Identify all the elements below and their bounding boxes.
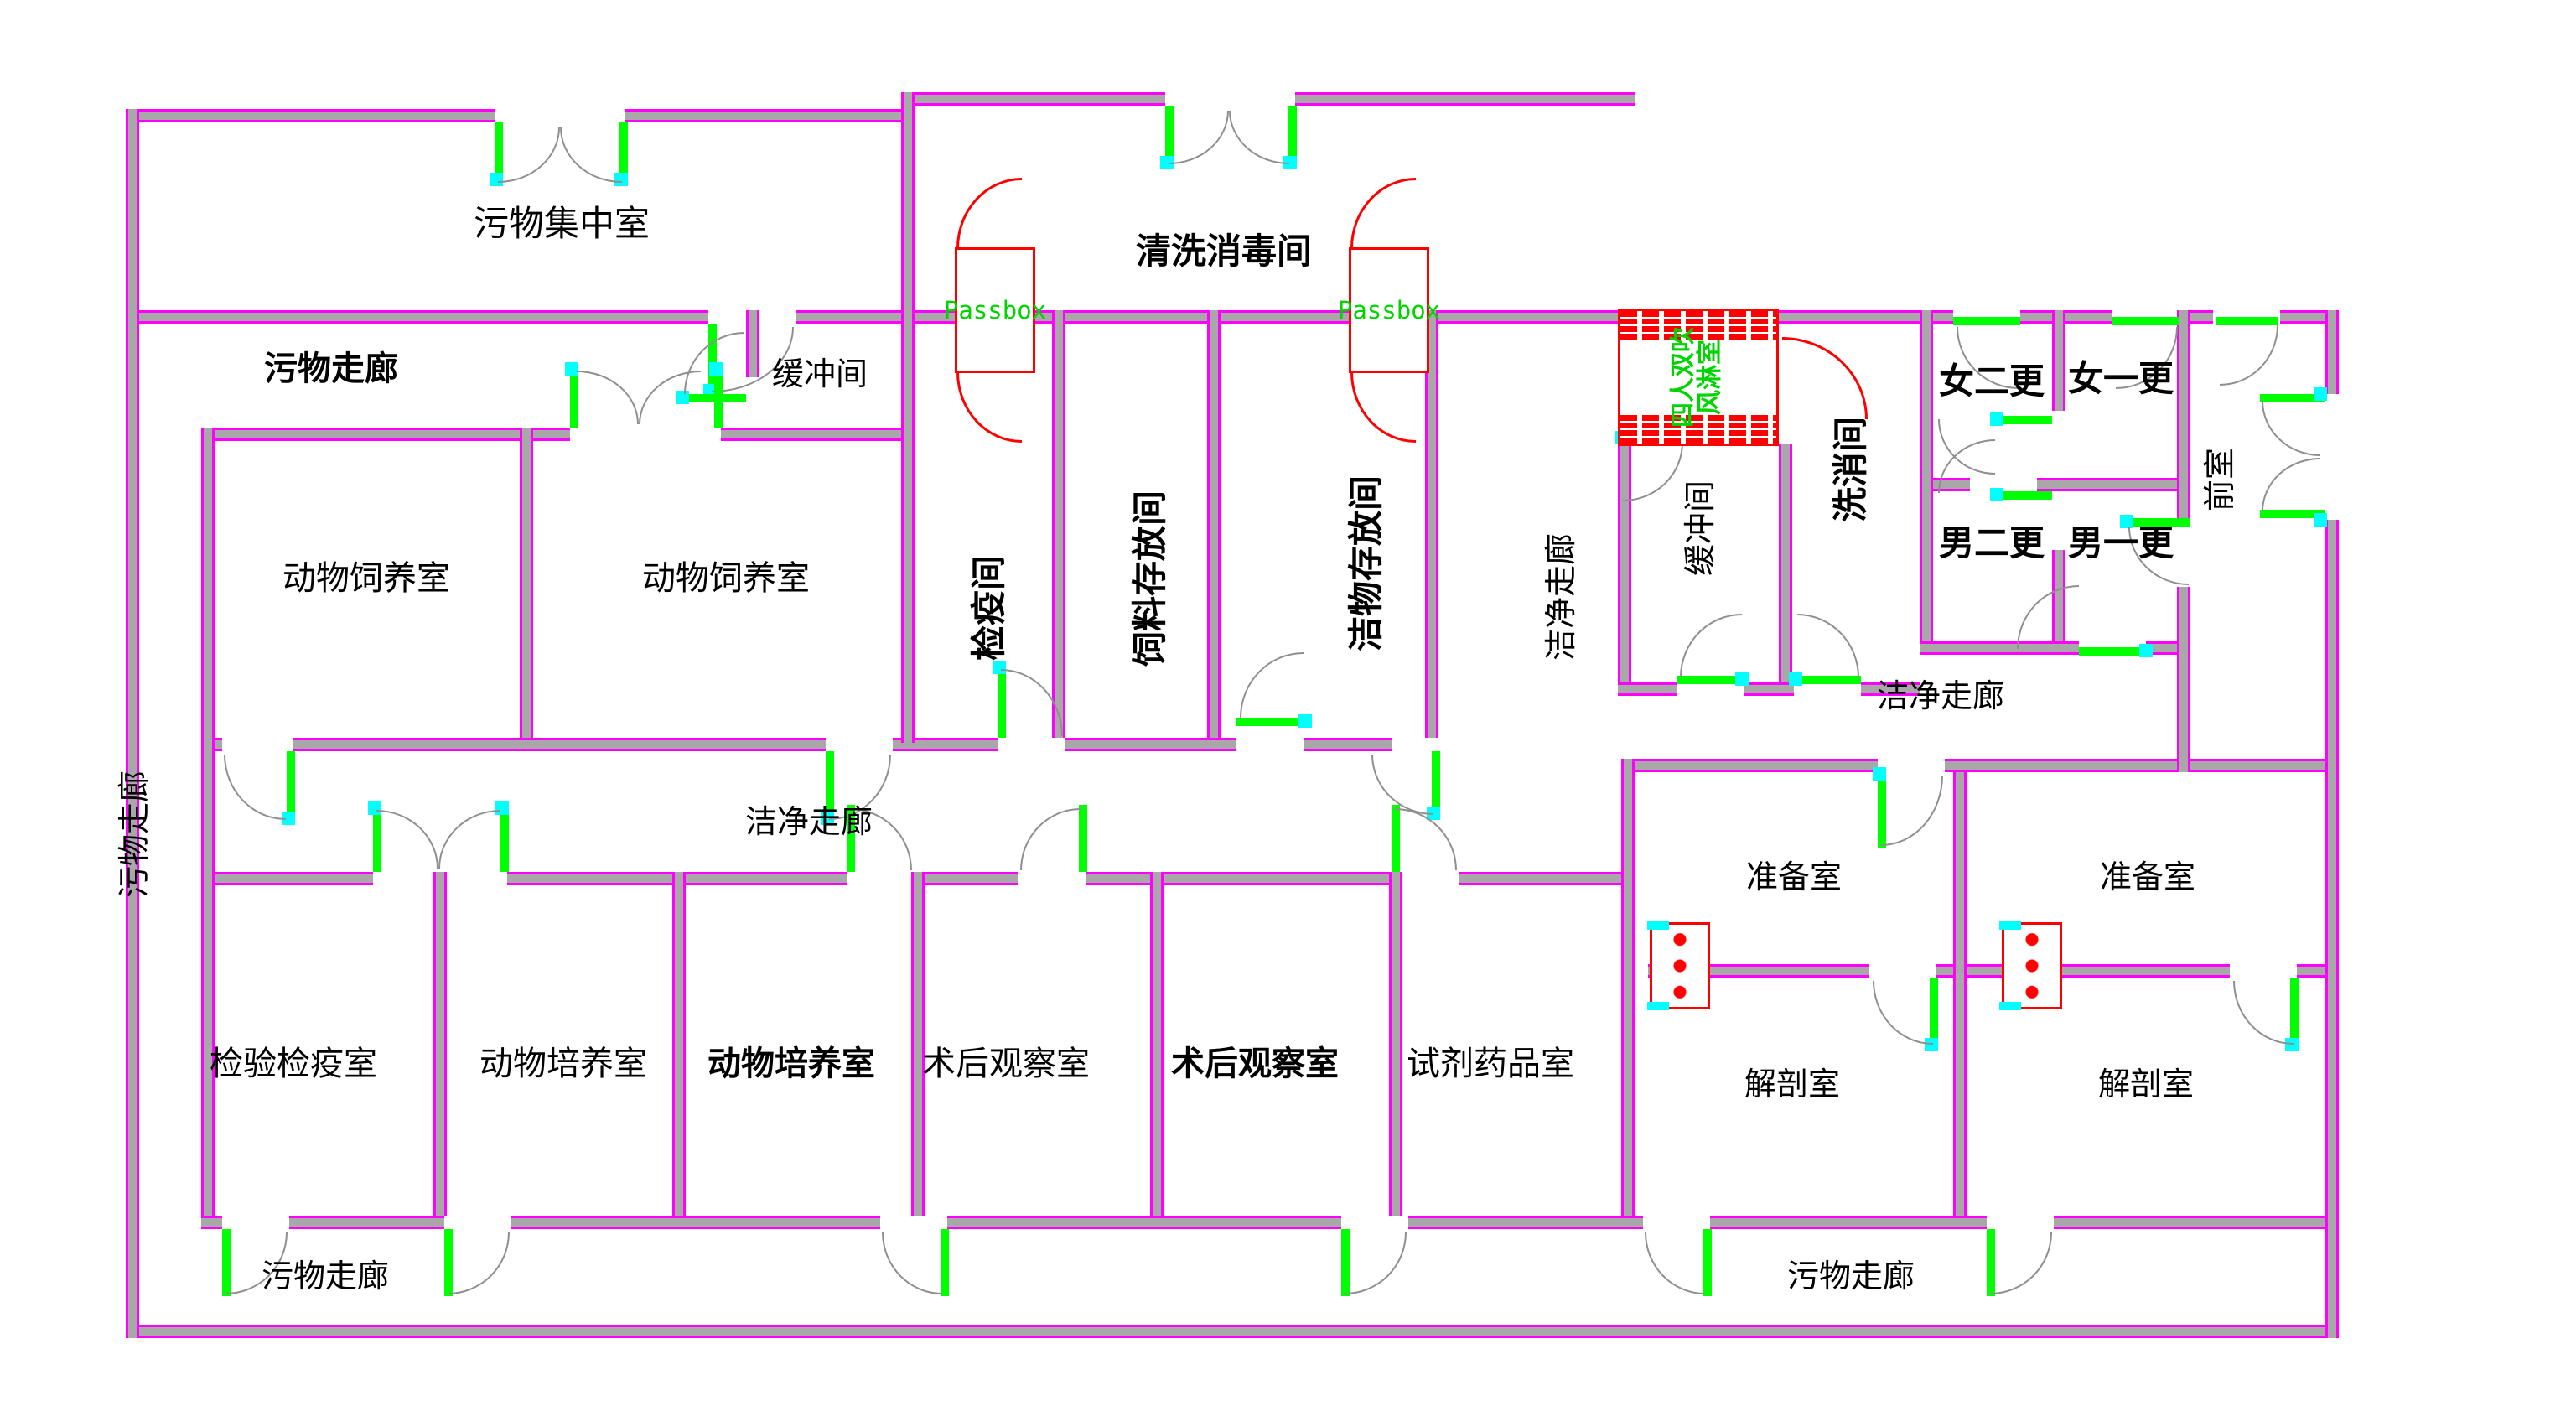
- wall-segment: [672, 872, 686, 1216]
- door-hinge: [2139, 644, 2153, 657]
- room-label-prep-room-1: 准备室: [1746, 862, 1842, 895]
- wall-segment: [1710, 1216, 1987, 1229]
- door-arc: [639, 371, 701, 424]
- room-label-buffer-top: 缓冲间: [772, 359, 868, 392]
- air-shower-door-arc: [1782, 337, 1868, 419]
- door-hinge: [709, 362, 723, 376]
- wall-segment: [1295, 92, 1635, 106]
- door-arc: [1229, 111, 1289, 164]
- door-arc: [1680, 614, 1742, 677]
- room-label-clean-storage: 洁物存放间: [1348, 475, 1385, 651]
- room-label-male-change-1: 男一更: [2068, 525, 2174, 562]
- door-arc: [2220, 325, 2278, 386]
- wall-segment: [126, 310, 708, 324]
- wall-segment: [1425, 310, 1635, 324]
- wall-segment: [2037, 478, 2190, 491]
- room-label-feed-storage: 饲料存放间: [1132, 490, 1169, 667]
- door-leaf: [714, 367, 723, 428]
- wall-segment: [126, 109, 139, 1338]
- transfer-window: [1650, 922, 1710, 1009]
- room-label-male-change-2: 男二更: [1939, 525, 2045, 562]
- room-label-animal-culture-2: 动物培养室: [707, 1046, 875, 1082]
- room-label-waste-corridor-left: 污物走廊: [119, 770, 153, 898]
- wall-segment: [796, 310, 901, 324]
- door-arc: [1873, 981, 1933, 1045]
- wall-segment: [520, 428, 533, 738]
- room-label-animal-feeding-1: 动物饲养室: [282, 561, 450, 596]
- wall-segment: [1936, 964, 1953, 978]
- wall-segment: [2177, 587, 2190, 772]
- wall-segment: [1621, 759, 1635, 1216]
- wall-segment: [1304, 738, 1392, 751]
- room-label-waste-collection: 污物集中室: [474, 206, 650, 243]
- door-arc: [560, 127, 622, 183]
- wall-segment: [201, 428, 570, 441]
- wall-segment: [2177, 310, 2190, 520]
- passbox-door-arc: [1350, 178, 1416, 248]
- passbox-label: Passbox: [944, 296, 1046, 324]
- wall-segment: [1425, 310, 1438, 738]
- room-label-quarantine: 检疫间: [971, 555, 1008, 661]
- wall-segment: [2325, 310, 2339, 394]
- wall-segment: [126, 109, 495, 122]
- wall-segment: [293, 738, 826, 751]
- passbox-label: Passbox: [1338, 296, 1440, 324]
- room-label-clean-corridor-mid-v: 洁净走廊: [1546, 533, 1579, 661]
- room-label-postop-observe-2: 术后观察室: [1171, 1046, 1339, 1082]
- room-label-wash-disinfect: 清洗消毒间: [1136, 233, 1312, 270]
- room-label-postop-observe-1: 术后观察室: [922, 1046, 1090, 1082]
- door-arc: [1797, 614, 1859, 677]
- wall-segment: [1052, 310, 1065, 738]
- wall-segment: [1150, 872, 1164, 1216]
- wall-segment: [901, 92, 1165, 106]
- door-arc: [1345, 1232, 1407, 1294]
- wall-segment: [201, 1216, 222, 1229]
- door-arc: [448, 1232, 510, 1294]
- wall-segment: [1086, 872, 1392, 885]
- door-leaf: [1995, 416, 2052, 424]
- room-label-prep-room-2: 准备室: [2100, 862, 2195, 895]
- door-arc: [1623, 443, 1683, 501]
- wall-segment: [914, 872, 1018, 885]
- door-arc: [1395, 808, 1457, 870]
- wall-segment: [201, 872, 373, 885]
- room-label-animal-culture-1: 动物培养室: [479, 1046, 647, 1082]
- wall-segment: [721, 428, 901, 441]
- wall-segment: [1618, 682, 1677, 696]
- room-label-clean-corridor-mid: 洁净走廊: [745, 807, 873, 840]
- wall-segment: [1408, 1216, 1643, 1229]
- room-label-female-change-1: 女一更: [2068, 361, 2174, 397]
- room-label-buffer-right: 缓冲间: [1685, 480, 1718, 576]
- door-leaf: [500, 807, 509, 872]
- passbox-symbol: Passbox: [955, 247, 1035, 373]
- door-arc: [1020, 808, 1081, 870]
- transfer-window: [2002, 922, 2062, 1009]
- wall-segment: [201, 428, 215, 1216]
- room-label-animal-feeding-2: 动物饲养室: [642, 561, 810, 596]
- room-label-dissection-2: 解剖室: [2098, 1069, 2194, 1102]
- wall-segment: [2052, 310, 2065, 411]
- air-shower-line2: 风淋室: [1697, 327, 1723, 428]
- wall-segment: [1779, 444, 1792, 682]
- passbox-door-arc: [956, 372, 1022, 443]
- room-label-reagent-drug: 试剂药品室: [1407, 1046, 1574, 1082]
- room-label-waste-corridor-top: 污物走廊: [264, 351, 398, 386]
- door-arc: [577, 371, 639, 424]
- door-leaf: [2079, 647, 2146, 656]
- door-arc: [1990, 1232, 2052, 1294]
- room-label-clean-corridor-right: 洁净走廊: [1877, 681, 2004, 714]
- door-leaf: [1236, 718, 1304, 726]
- wall-segment: [947, 1216, 1341, 1229]
- door-leaf: [1995, 491, 2052, 500]
- wall-segment: [1635, 759, 1878, 772]
- wall-segment: [625, 109, 901, 122]
- door-arc: [498, 127, 560, 183]
- wall-segment: [1459, 872, 1635, 885]
- passbox-door-arc: [956, 178, 1022, 248]
- door-arc: [2017, 585, 2079, 649]
- door-arc: [224, 755, 286, 820]
- door-arc: [1645, 1232, 1705, 1294]
- wall-segment: [911, 872, 925, 1216]
- door-arc: [2262, 458, 2320, 511]
- wall-segment: [1035, 310, 1350, 324]
- door-leaf: [2112, 317, 2179, 325]
- passbox-door-arc: [1350, 372, 1416, 443]
- wall-segment: [1953, 772, 1967, 1216]
- room-label-inspection-quarantine: 检验检疫室: [210, 1046, 377, 1082]
- door-arc: [376, 810, 438, 869]
- wall-segment: [1389, 872, 1402, 1216]
- wall-segment: [289, 1216, 444, 1229]
- wall-segment: [1945, 759, 2339, 772]
- wall-segment: [1065, 738, 1236, 751]
- room-label-waste-corridor-bottom-left: 污物走廊: [262, 1261, 389, 1294]
- wall-segment: [901, 92, 915, 743]
- room-label-waste-corridor-bottom-right: 污物走廊: [1787, 1261, 1915, 1294]
- door-arc: [2233, 981, 2294, 1045]
- floor-plan: Passbox Passbox 四人双吹 风淋室 污物集中室 清洗消毒间 污物走…: [0, 0, 2576, 1411]
- door-arc: [1371, 755, 1433, 815]
- passbox-symbol: Passbox: [1349, 247, 1429, 373]
- wall-segment: [2054, 1216, 2339, 1229]
- wall-segment: [2020, 310, 2112, 324]
- wall-segment: [1920, 310, 1933, 641]
- wall-segment: [433, 872, 447, 1216]
- room-label-front-room: 前室: [2205, 448, 2238, 511]
- door-arc: [1881, 776, 1943, 846]
- door-arc: [1169, 111, 1229, 164]
- door-arc: [882, 1232, 942, 1294]
- wall-segment: [2325, 520, 2339, 1338]
- door-leaf: [2216, 317, 2278, 325]
- door-arc: [2262, 401, 2320, 456]
- door-hinge: [2314, 387, 2327, 401]
- door-hinge: [2314, 513, 2327, 527]
- room-label-wash-room: 洗消间: [1832, 417, 1869, 522]
- door-arc: [438, 810, 500, 869]
- wall-segment: [511, 1216, 880, 1229]
- room-label-female-change-2: 女二更: [1939, 363, 2045, 400]
- wall-segment: [126, 1325, 2339, 1338]
- air-shower-label: 四人双吹 风淋室: [1671, 327, 1723, 428]
- wall-segment: [1744, 682, 1794, 696]
- room-label-dissection-1: 解剖室: [1744, 1069, 1840, 1102]
- door-arc: [1240, 652, 1304, 718]
- door-leaf: [1953, 317, 2020, 325]
- wall-segment: [1207, 310, 1221, 738]
- air-shower-line1: 四人双吹: [1671, 327, 1697, 428]
